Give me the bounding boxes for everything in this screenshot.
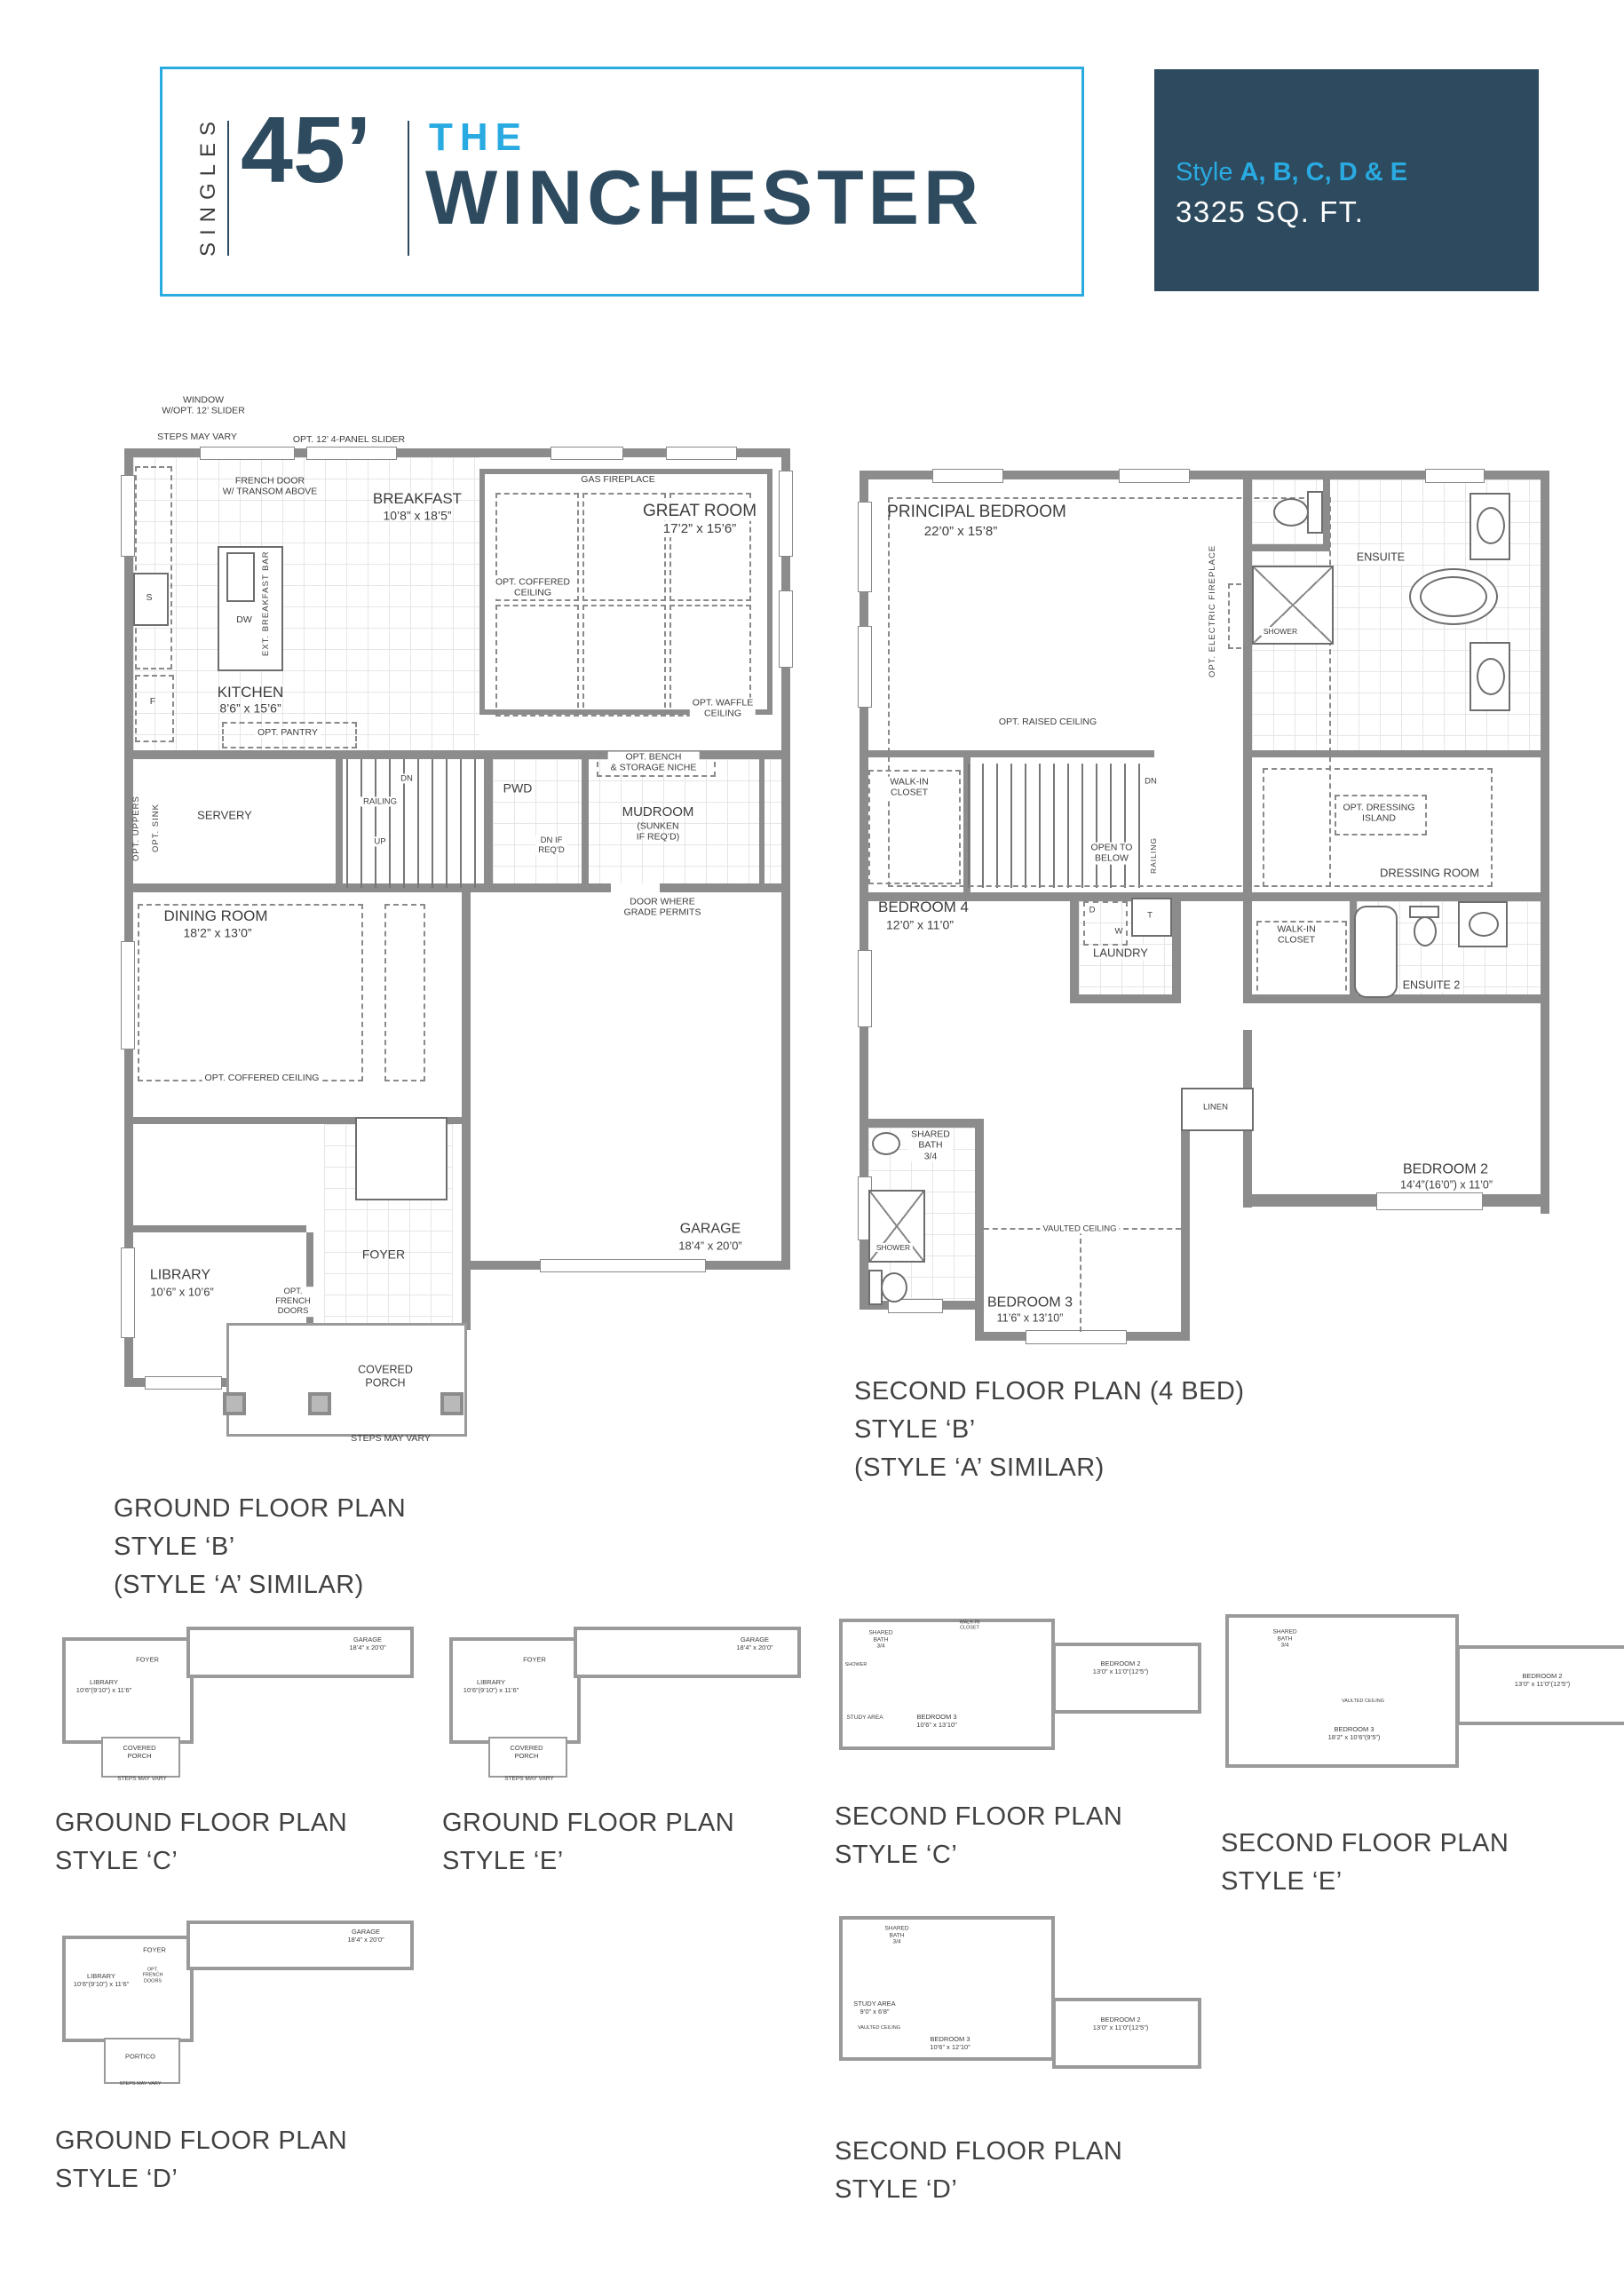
- wall: [1070, 994, 1181, 1003]
- label-dn-if-reqd: DN IF REQ’D: [535, 836, 567, 855]
- caption-ground-b: GROUND FLOOR PLAN STYLE ‘B’ (STYLE ‘A’ S…: [114, 1490, 406, 1604]
- lot-width: 45’: [241, 103, 371, 197]
- window: [1425, 469, 1485, 483]
- wall: [1172, 892, 1181, 1003]
- label-steps: STEPS MAY VARY: [120, 2081, 162, 2087]
- caption-second-d: SECOND FLOOR PLAN STYLE ‘D’: [835, 2133, 1122, 2209]
- plan-second-d: SHARED BATH 3/4 STUDY AREA 9’0” x 6’8” V…: [835, 1909, 1203, 2100]
- label-railing: RAILING: [1149, 828, 1158, 882]
- label-dn: DN: [1142, 776, 1160, 786]
- room-label-bedroom2: BEDROOM 2 13’0” x 11’0”(12’5”): [1515, 1673, 1570, 1689]
- caption-ground-e: GROUND FLOOR PLAN STYLE ‘E’: [442, 1804, 734, 1881]
- wall: [860, 1119, 984, 1128]
- window: [858, 950, 872, 1027]
- wall: [781, 448, 790, 1270]
- series-label: SINGLES: [196, 112, 221, 258]
- room-label-breakfast: BREAKFAST: [373, 490, 462, 508]
- room-dims-breakfast: 10’8” x 18’5”: [383, 509, 451, 524]
- fireplace-outline: [1228, 583, 1249, 649]
- caption-line: SECOND FLOOR PLAN: [835, 2133, 1122, 2171]
- thumb-garage: [574, 1627, 801, 1678]
- label-vaulted: VAULTED CEILING: [1040, 1224, 1119, 1233]
- room-dims-dining: 18’2” x 13’0”: [183, 926, 251, 941]
- room-label-porch: COVERED PORCH: [358, 1363, 413, 1390]
- label-gas-fireplace: GAS FIREPLACE: [581, 474, 654, 485]
- label-shower2: SHOWER: [874, 1243, 913, 1252]
- room-label-garage: GARAGE 18’4” x 20’0”: [736, 1636, 772, 1652]
- room-label-wic2: WALK-IN CLOSET: [1274, 924, 1318, 946]
- sink-basin: [1477, 507, 1505, 544]
- header-divider-2: [408, 121, 409, 256]
- window: [779, 471, 793, 557]
- label-steps: STEPS MAY VARY: [117, 1776, 167, 1783]
- room-label-wic: WALK-IN CLOSET: [887, 777, 931, 799]
- wall: [479, 469, 485, 715]
- label-vaulted: VAULTED CEILING: [1342, 1699, 1384, 1704]
- window: [121, 475, 135, 557]
- caption-line: STYLE ‘E’: [1221, 1863, 1509, 1901]
- plan-ground-c: LIBRARY 10’6”(9’10”) x 11’6” FOYER COVER…: [55, 1618, 410, 1786]
- room-label-ensuite: ENSUITE: [1354, 551, 1407, 565]
- ensuite2-tub: [1354, 906, 1398, 998]
- caption-second-c: SECOND FLOOR PLAN STYLE ‘C’: [835, 1798, 1122, 1874]
- sqft-label: 3325 SQ. FT.: [1176, 195, 1364, 229]
- room-label-pwd: PWD: [503, 781, 533, 796]
- room-label-garage: GARAGE 18’4” x 20’0”: [349, 1636, 385, 1652]
- room-label-bedroom2: BEDROOM 2: [1403, 1162, 1488, 1179]
- sink-basin: [872, 1132, 900, 1155]
- room-label-foyer: FOYER: [143, 1947, 166, 1955]
- plan-second-c: SHARED BATH 3/4 SHOWER STUDY AREA BEDROO…: [835, 1612, 1203, 1776]
- caption-line: (STYLE ‘A’ SIMILAR): [854, 1449, 1245, 1487]
- label-opt-uppers: OPT. UPPERS: [131, 784, 141, 873]
- dining-window: [121, 941, 135, 1049]
- label-coffered-ceiling: OPT. COFFERED CEILING: [493, 577, 573, 599]
- porch-post: [308, 1392, 331, 1415]
- wall: [1070, 892, 1079, 1003]
- island-sink: [226, 552, 255, 602]
- caption-line: SECOND FLOOR PLAN (4 BED): [854, 1373, 1245, 1411]
- header-plate: SINGLES 45’ THE WINCHESTER: [160, 67, 1084, 297]
- caption-ground-c: GROUND FLOOR PLAN STYLE ‘C’: [55, 1804, 347, 1881]
- room-label-dressing: DRESSING ROOM: [1377, 866, 1482, 879]
- wall: [484, 759, 493, 888]
- wall: [767, 469, 772, 715]
- waffle-cell: [582, 605, 666, 717]
- plan-second-b: PRINCIPAL BEDROOM 22’0” x 15’8” OPT. RAI…: [852, 466, 1563, 1363]
- caption-line: SECOND FLOOR PLAN: [835, 1798, 1122, 1836]
- room-label-laundry: LAUNDRY: [1090, 946, 1151, 959]
- library-window: [121, 1247, 135, 1338]
- window: [932, 469, 1003, 483]
- label-vaulted: VAULTED CEILING: [858, 2025, 900, 2031]
- label-study: STUDY AREA 9’0” x 6’8”: [853, 2000, 895, 2016]
- room-label-garage: GARAGE: [680, 1222, 741, 1239]
- wall: [124, 448, 133, 1387]
- label-bench: OPT. BENCH & STORAGE NICHE: [608, 752, 700, 774]
- french-door-window: [200, 447, 295, 460]
- room-label-foyer: FOYER: [523, 1657, 546, 1665]
- toilet-bowl: [881, 1272, 907, 1303]
- label-french-doors: OPT. FRENCH DOORS: [273, 1287, 313, 1317]
- waffle-cell: [495, 605, 579, 717]
- room-label-kitchen: KITCHEN: [218, 684, 284, 701]
- room-label-porch: COVERED PORCH: [123, 1745, 155, 1761]
- toilet-bowl: [1414, 916, 1437, 946]
- room-label-foyer: FOYER: [136, 1657, 159, 1665]
- label-elec-fireplace: OPT. ELECTRIC FIREPLACE: [1208, 562, 1217, 677]
- plan-second-e: SHARED BATH 3/4 BEDROOM 2 13’0” x 11’0”(…: [1221, 1605, 1624, 1814]
- room-label-mudroom: MUDROOM: [622, 804, 694, 820]
- caption-line: (STYLE ‘A’ SIMILAR): [114, 1566, 406, 1604]
- garage-door-opening: [540, 1259, 706, 1272]
- library-window: [145, 1376, 222, 1390]
- caption-line: STYLE ‘B’: [114, 1528, 406, 1566]
- caption-line: STYLE ‘C’: [55, 1842, 347, 1881]
- label-steps-bottom: STEPS MAY VARY: [351, 1433, 431, 1444]
- ceiling-outline: [384, 904, 425, 1081]
- brochure-page: SINGLES 45’ THE WINCHESTER Style A, B, C…: [0, 0, 1624, 2273]
- label-waffle-ceiling: OPT. WAFFLE CEILING: [690, 698, 756, 720]
- window: [1119, 469, 1190, 483]
- foyer-closet: [355, 1117, 448, 1200]
- room-label-library: LIBRARY 10’6”(9’10”) x 11’6”: [463, 1679, 519, 1695]
- wall: [1243, 901, 1252, 1003]
- label-panel-slider: OPT. 12’ 4-PANEL SLIDER: [293, 434, 405, 445]
- room-label-garage: GARAGE 18’4” x 20’0”: [347, 1928, 384, 1944]
- wall: [124, 1225, 306, 1232]
- room-label-bedroom4: BEDROOM 4: [878, 899, 969, 916]
- room-label-shared-bath: SHARED BATH 3/4: [884, 1926, 908, 1946]
- label-shower: SHOWER: [845, 1662, 867, 1667]
- room-label-bedroom3: BEDROOM 3 10’6” x 13’10”: [916, 1714, 956, 1730]
- caption-line: SECOND FLOOR PLAN: [1221, 1825, 1509, 1863]
- label-door-grade: DOOR WHERE GRADE PERMITS: [624, 897, 701, 919]
- label-railing: RAILING: [360, 796, 400, 806]
- room-dims-principal: 22’0” x 15’8”: [924, 524, 998, 540]
- label-shower: SHOWER: [1261, 627, 1300, 636]
- room-dims-library: 10’6” x 10’6”: [150, 1285, 214, 1298]
- sink-basin: [1469, 912, 1499, 937]
- thumb-outline: [1225, 1614, 1459, 1768]
- room-label-principal: PRINCIPAL BEDROOM: [887, 503, 1066, 522]
- covered-porch-outline: [226, 1323, 467, 1437]
- label-dishwasher: DW: [236, 614, 252, 625]
- room-label-library: LIBRARY 10’6”(9’10”) x 11’6”: [74, 1973, 129, 1989]
- label-up: UP: [371, 836, 388, 846]
- room-label-foyer: FOYER: [362, 1247, 405, 1263]
- label-raised-ceiling: OPT. RAISED CEILING: [999, 717, 1097, 727]
- room-label-porch: COVERED PORCH: [510, 1745, 543, 1761]
- plan-ground-d: LIBRARY 10’6”(9’10”) x 11’6” OPT. FRENCH…: [55, 1913, 410, 2095]
- room-label-portico: PORTICO: [125, 2054, 155, 2062]
- room-label-bedroom2: BEDROOM 2 13’0” x 11’0”(12’5”): [1093, 2016, 1148, 2032]
- caption-ground-d: GROUND FLOOR PLAN STYLE ‘D’: [55, 2122, 347, 2198]
- ensuite-tub-inner: [1420, 576, 1487, 617]
- room-dims-bedroom4: 12’0” x 11’0”: [886, 918, 954, 933]
- caption-second-e: SECOND FLOOR PLAN STYLE ‘E’: [1221, 1825, 1509, 1901]
- room-dims-bedroom3: 11’6” x 13’10”: [997, 1312, 1064, 1326]
- header-divider-1: [227, 121, 229, 256]
- model-the: THE: [429, 115, 528, 160]
- window: [666, 447, 737, 460]
- caption-line: GROUND FLOOR PLAN: [55, 2122, 347, 2160]
- wall: [336, 759, 343, 888]
- window: [551, 447, 623, 460]
- label-coffered-dining: OPT. COFFERED CEILING: [202, 1073, 322, 1083]
- window: [858, 626, 872, 708]
- room-label-servery: SERVERY: [197, 808, 252, 821]
- fridge-outline: [135, 675, 174, 742]
- thumb-bedroom2: [1052, 1643, 1201, 1714]
- door-opening: [611, 883, 660, 892]
- room-label-dining: DINING ROOM: [163, 907, 267, 925]
- style-letters: A, B, C, D & E: [1240, 158, 1408, 186]
- label-dn: DN: [398, 773, 416, 783]
- thumb-garage: [186, 1627, 414, 1678]
- spec-plate: Style A, B, C, D & E 3325 SQ. FT.: [1154, 69, 1539, 291]
- plan-ground-e: LIBRARY 10’6”(9’10”) x 11’6” FOYER COVER…: [442, 1618, 797, 1786]
- vaulted-line: [1080, 1230, 1081, 1332]
- slider-window: [306, 447, 397, 460]
- plan-ground-b: WINDOW W/OPT. 12’ SLIDER STEPS MAY VARY …: [114, 391, 837, 1452]
- room-label-library: LIBRARY: [150, 1268, 210, 1285]
- caption-second-b: SECOND FLOOR PLAN (4 BED) STYLE ‘B’ (STY…: [854, 1373, 1245, 1487]
- label-dryer: D: [1089, 905, 1096, 915]
- counter-outline: [135, 466, 172, 669]
- label-dressing-island: OPT. DRESSING ISLAND: [1340, 803, 1417, 825]
- window: [1376, 1192, 1483, 1210]
- sink-basin: [1477, 658, 1505, 695]
- label-window-slider: WINDOW W/OPT. 12’ SLIDER: [162, 395, 245, 417]
- thumb-outline: [62, 1936, 194, 2042]
- caption-line: STYLE ‘D’: [55, 2160, 347, 2198]
- label-steps-top: STEPS MAY VARY: [157, 432, 237, 442]
- room-label-bedroom3: BEDROOM 3: [987, 1295, 1073, 1312]
- window: [779, 590, 793, 668]
- room-label-shared-bath: SHARED BATH 3/4: [908, 1129, 953, 1161]
- room-dims-kitchen: 8’6” x 15’6”: [219, 701, 281, 717]
- label-french-doors: OPT. FRENCH DOORS: [143, 1967, 163, 1984]
- room-label-shared-bath: SHARED BATH 3/4: [868, 1630, 892, 1651]
- caption-line: STYLE ‘D’: [835, 2171, 1122, 2209]
- caption-line: GROUND FLOOR PLAN: [442, 1804, 734, 1842]
- caption-line: STYLE ‘E’: [442, 1842, 734, 1881]
- room-dims-bedroom2: 14’4”(16’0”) x 11’0”: [1400, 1179, 1493, 1192]
- room-dims-garage: 18’4” x 20’0”: [678, 1239, 742, 1252]
- room-label-ensuite2: ENSUITE 2: [1400, 979, 1463, 993]
- toilet-bowl: [1273, 498, 1309, 527]
- wall: [759, 759, 764, 888]
- thumb-bedroom2: [1052, 1998, 1201, 2069]
- porch-post: [223, 1392, 246, 1415]
- room-label-bedroom3: BEDROOM 3 10’6” x 12’10”: [930, 2036, 970, 2052]
- label-french-door: FRENCH DOOR W/ TRANSOM ABOVE: [223, 476, 318, 498]
- room-label-linen: LINEN: [1203, 1102, 1228, 1112]
- label-washer: W: [1115, 926, 1123, 936]
- wall: [1181, 1128, 1190, 1341]
- room-label-shared-bath: SHARED BATH 3/4: [1272, 1629, 1296, 1650]
- room-label-great-room: GREAT ROOM: [640, 502, 759, 521]
- caption-line: STYLE ‘B’: [854, 1411, 1245, 1449]
- wall: [582, 759, 589, 888]
- label-fridge: F: [150, 696, 155, 707]
- window: [858, 502, 872, 592]
- room-dims-great-room: 17’2” x 15’6”: [661, 521, 740, 537]
- label-ext-breakfast-bar: EXT. BREAKFAST BAR: [261, 543, 271, 663]
- label-opt-pantry: OPT. PANTRY: [255, 727, 321, 738]
- label-open-below: OPEN TO BELOW: [1089, 843, 1136, 865]
- label-study: STUDY AREA: [846, 1715, 883, 1722]
- caption-line: STYLE ‘C’: [835, 1836, 1122, 1874]
- label-steps: STEPS MAY VARY: [504, 1776, 554, 1783]
- toilet-tank: [1307, 491, 1323, 534]
- room-label-library: LIBRARY 10’6”(9’10”) x 11’6”: [76, 1679, 131, 1695]
- label-cooktop: S: [146, 592, 152, 603]
- window: [1026, 1330, 1127, 1344]
- room-label-wic: WALK-IN CLOSET: [960, 1620, 980, 1632]
- model-name: WINCHESTER: [425, 156, 983, 241]
- style-label: Style: [1176, 158, 1232, 186]
- caption-line: GROUND FLOOR PLAN: [114, 1490, 406, 1528]
- room-label-bedroom3: BEDROOM 3 18’2” x 10’6”(9’5”): [1328, 1726, 1381, 1742]
- porch-post: [440, 1392, 463, 1415]
- label-laundry-tub: T: [1147, 910, 1153, 920]
- room-label-bedroom2: BEDROOM 2 13’0” x 11’0”(12’5”): [1093, 1660, 1148, 1676]
- label-opt-sink: OPT. SINK: [151, 788, 161, 868]
- caption-line: GROUND FLOOR PLAN: [55, 1804, 347, 1842]
- wall: [1541, 471, 1549, 1214]
- label-mudroom-sub: (SUNKEN IF REQ’D): [637, 821, 679, 843]
